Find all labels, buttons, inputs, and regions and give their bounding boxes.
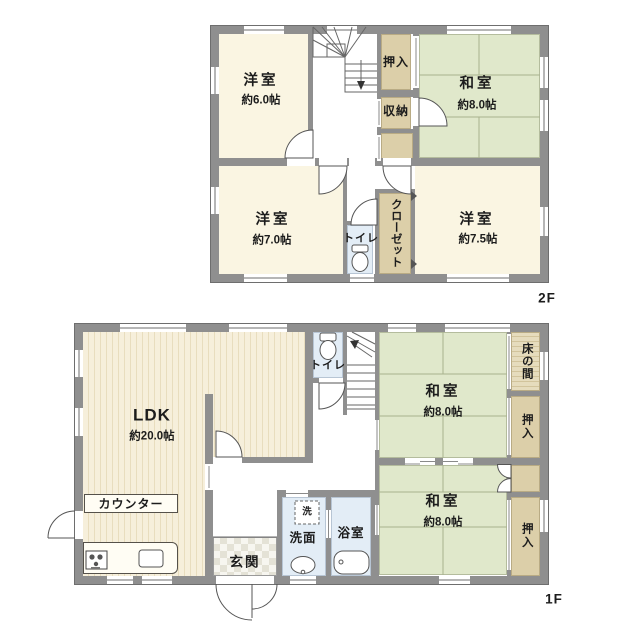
label-1f-tokonoma: 床の間 bbox=[520, 342, 532, 380]
label-2f-japanese8-name: 和室 bbox=[460, 77, 495, 92]
floor-plan-canvas: 洋室 約6.0帖 和室 約8.0帖 押入 収納 洋室 約7.0帖 トイレ クロー… bbox=[0, 0, 640, 640]
label-2f-western6-size: 約6.0帖 bbox=[242, 95, 281, 107]
label-1f-toilet: トイレ bbox=[310, 361, 346, 372]
label-1f-oshiire-south: 押入 bbox=[520, 523, 532, 550]
label-2f-oshiire: 押入 bbox=[383, 56, 409, 68]
label-1f-japanese8n-size: 約8.0帖 bbox=[424, 407, 463, 419]
label-1f-japanese8s-name: 和室 bbox=[426, 495, 461, 510]
label-2f-western75-name: 洋室 bbox=[460, 213, 495, 228]
label-2f-toilet: トイレ bbox=[343, 234, 379, 245]
floor-label-1f: 1F bbox=[545, 592, 563, 606]
label-1f-laundry: 洗 bbox=[302, 507, 312, 517]
label-2f-western75-size: 約7.5帖 bbox=[459, 234, 498, 246]
label-1f-bath: 浴室 bbox=[337, 527, 364, 540]
label-1f-japanese8n-name: 和室 bbox=[426, 385, 461, 400]
floor-label-2f: 2F bbox=[538, 291, 556, 305]
label-1f-senmen: 洗面 bbox=[289, 532, 316, 545]
label-2f-western7-size: 約7.0帖 bbox=[253, 235, 292, 247]
label-1f-oshiire-north: 押入 bbox=[520, 414, 532, 441]
label-2f-japanese8-size: 約8.0帖 bbox=[458, 100, 497, 112]
label-2f-western6-name: 洋室 bbox=[244, 74, 279, 89]
label-1f-counter: カウンター bbox=[98, 498, 163, 510]
label-2f-closet: クローゼット bbox=[389, 199, 401, 268]
label-2f-western7-name: 洋室 bbox=[256, 213, 291, 228]
label-1f-japanese8s-size: 約8.0帖 bbox=[424, 517, 463, 529]
label-1f-ldk-size: 約20.0帖 bbox=[129, 431, 174, 443]
label-2f-shunou: 収納 bbox=[383, 105, 409, 117]
label-1f-genkan: 玄関 bbox=[230, 555, 261, 569]
label-1f-ldk-name: LDK bbox=[133, 407, 171, 424]
